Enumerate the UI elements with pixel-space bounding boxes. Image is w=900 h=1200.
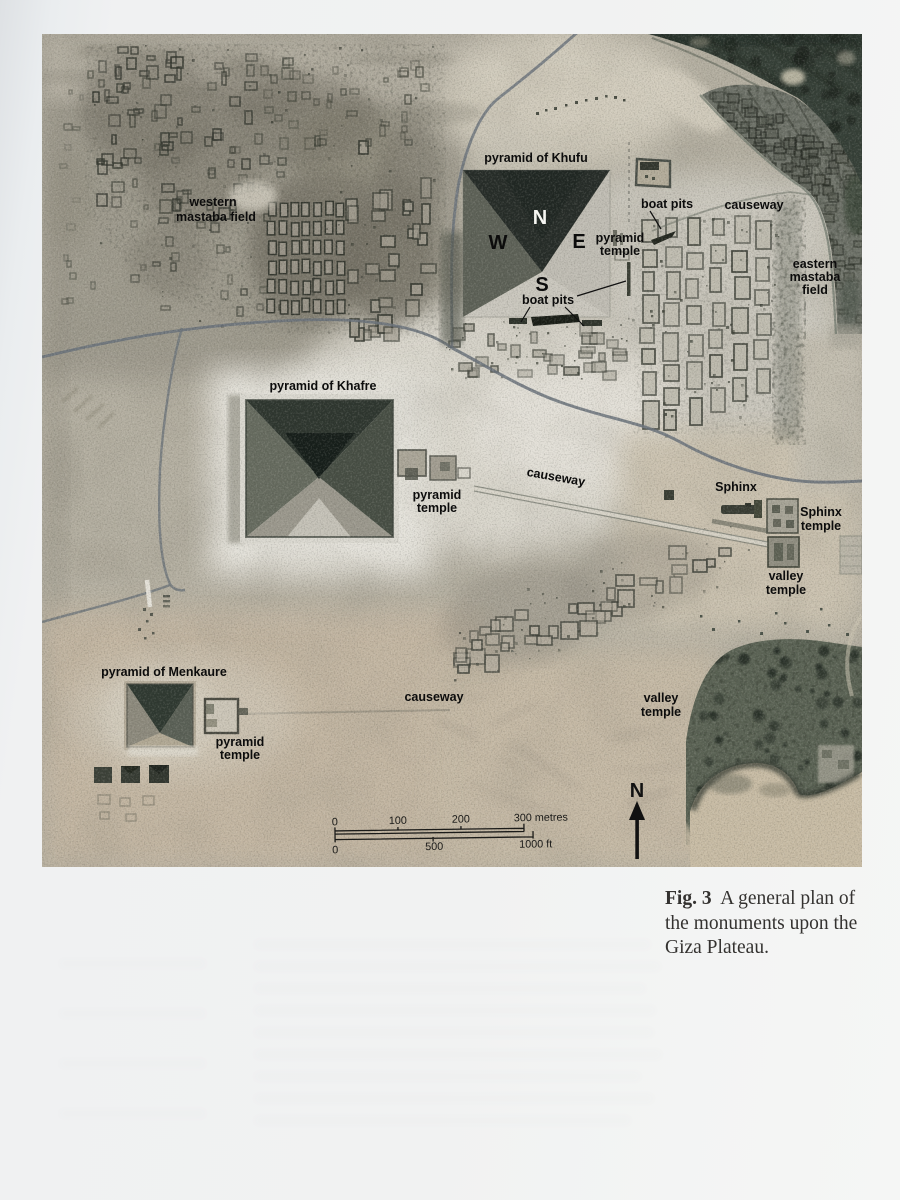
svg-text:Sphinx: Sphinx — [715, 480, 757, 494]
svg-text:1000 ft: 1000 ft — [519, 838, 552, 850]
svg-text:boat pits: boat pits — [522, 293, 574, 307]
svg-text:N: N — [533, 207, 547, 229]
svg-text:pyramid of Menkaure: pyramid of Menkaure — [101, 665, 227, 679]
svg-text:pyramid: pyramid — [596, 231, 645, 245]
svg-text:E: E — [572, 231, 585, 253]
svg-text:temple: temple — [220, 748, 260, 762]
svg-text:Sphinx: Sphinx — [800, 505, 842, 519]
svg-text:temple: temple — [801, 519, 841, 533]
svg-text:causeway: causeway — [724, 198, 783, 212]
svg-text:temple: temple — [417, 501, 457, 515]
svg-text:pyramid: pyramid — [413, 488, 462, 502]
svg-text:pyramid of Khafre: pyramid of Khafre — [270, 379, 377, 393]
svg-text:temple: temple — [641, 705, 681, 719]
svg-text:temple: temple — [600, 244, 640, 258]
svg-text:western: western — [188, 195, 236, 209]
svg-text:pyramid: pyramid — [216, 735, 265, 749]
svg-text:boat pits: boat pits — [641, 197, 693, 211]
svg-text:0: 0 — [332, 816, 338, 828]
svg-text:pyramid of Khufu: pyramid of Khufu — [484, 151, 587, 165]
svg-text:200: 200 — [452, 813, 470, 825]
svg-text:W: W — [489, 232, 508, 254]
svg-text:500: 500 — [425, 841, 443, 853]
svg-text:valley: valley — [769, 569, 804, 583]
svg-text:valley: valley — [644, 691, 679, 705]
svg-text:300 metres: 300 metres — [514, 812, 569, 825]
svg-text:0: 0 — [332, 844, 338, 856]
svg-text:field: field — [802, 283, 828, 297]
svg-text:100: 100 — [389, 815, 407, 827]
svg-text:temple: temple — [766, 583, 806, 597]
svg-text:mastaba field: mastaba field — [176, 210, 256, 224]
svg-text:N: N — [630, 780, 644, 802]
svg-text:eastern: eastern — [793, 257, 837, 271]
svg-text:causeway: causeway — [404, 690, 463, 704]
svg-text:mastaba: mastaba — [790, 270, 842, 284]
